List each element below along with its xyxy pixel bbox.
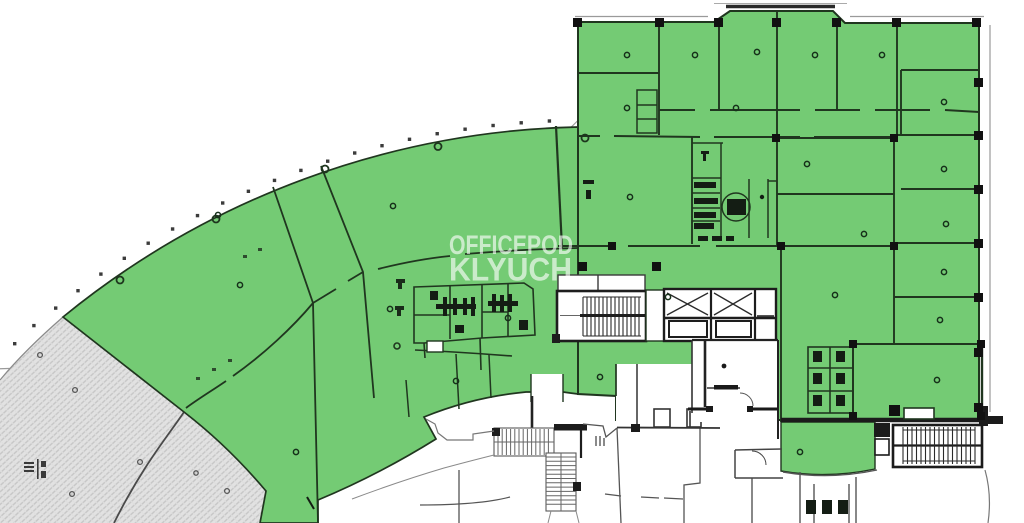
svg-text:KLYUCH: KLYUCH bbox=[449, 252, 572, 288]
